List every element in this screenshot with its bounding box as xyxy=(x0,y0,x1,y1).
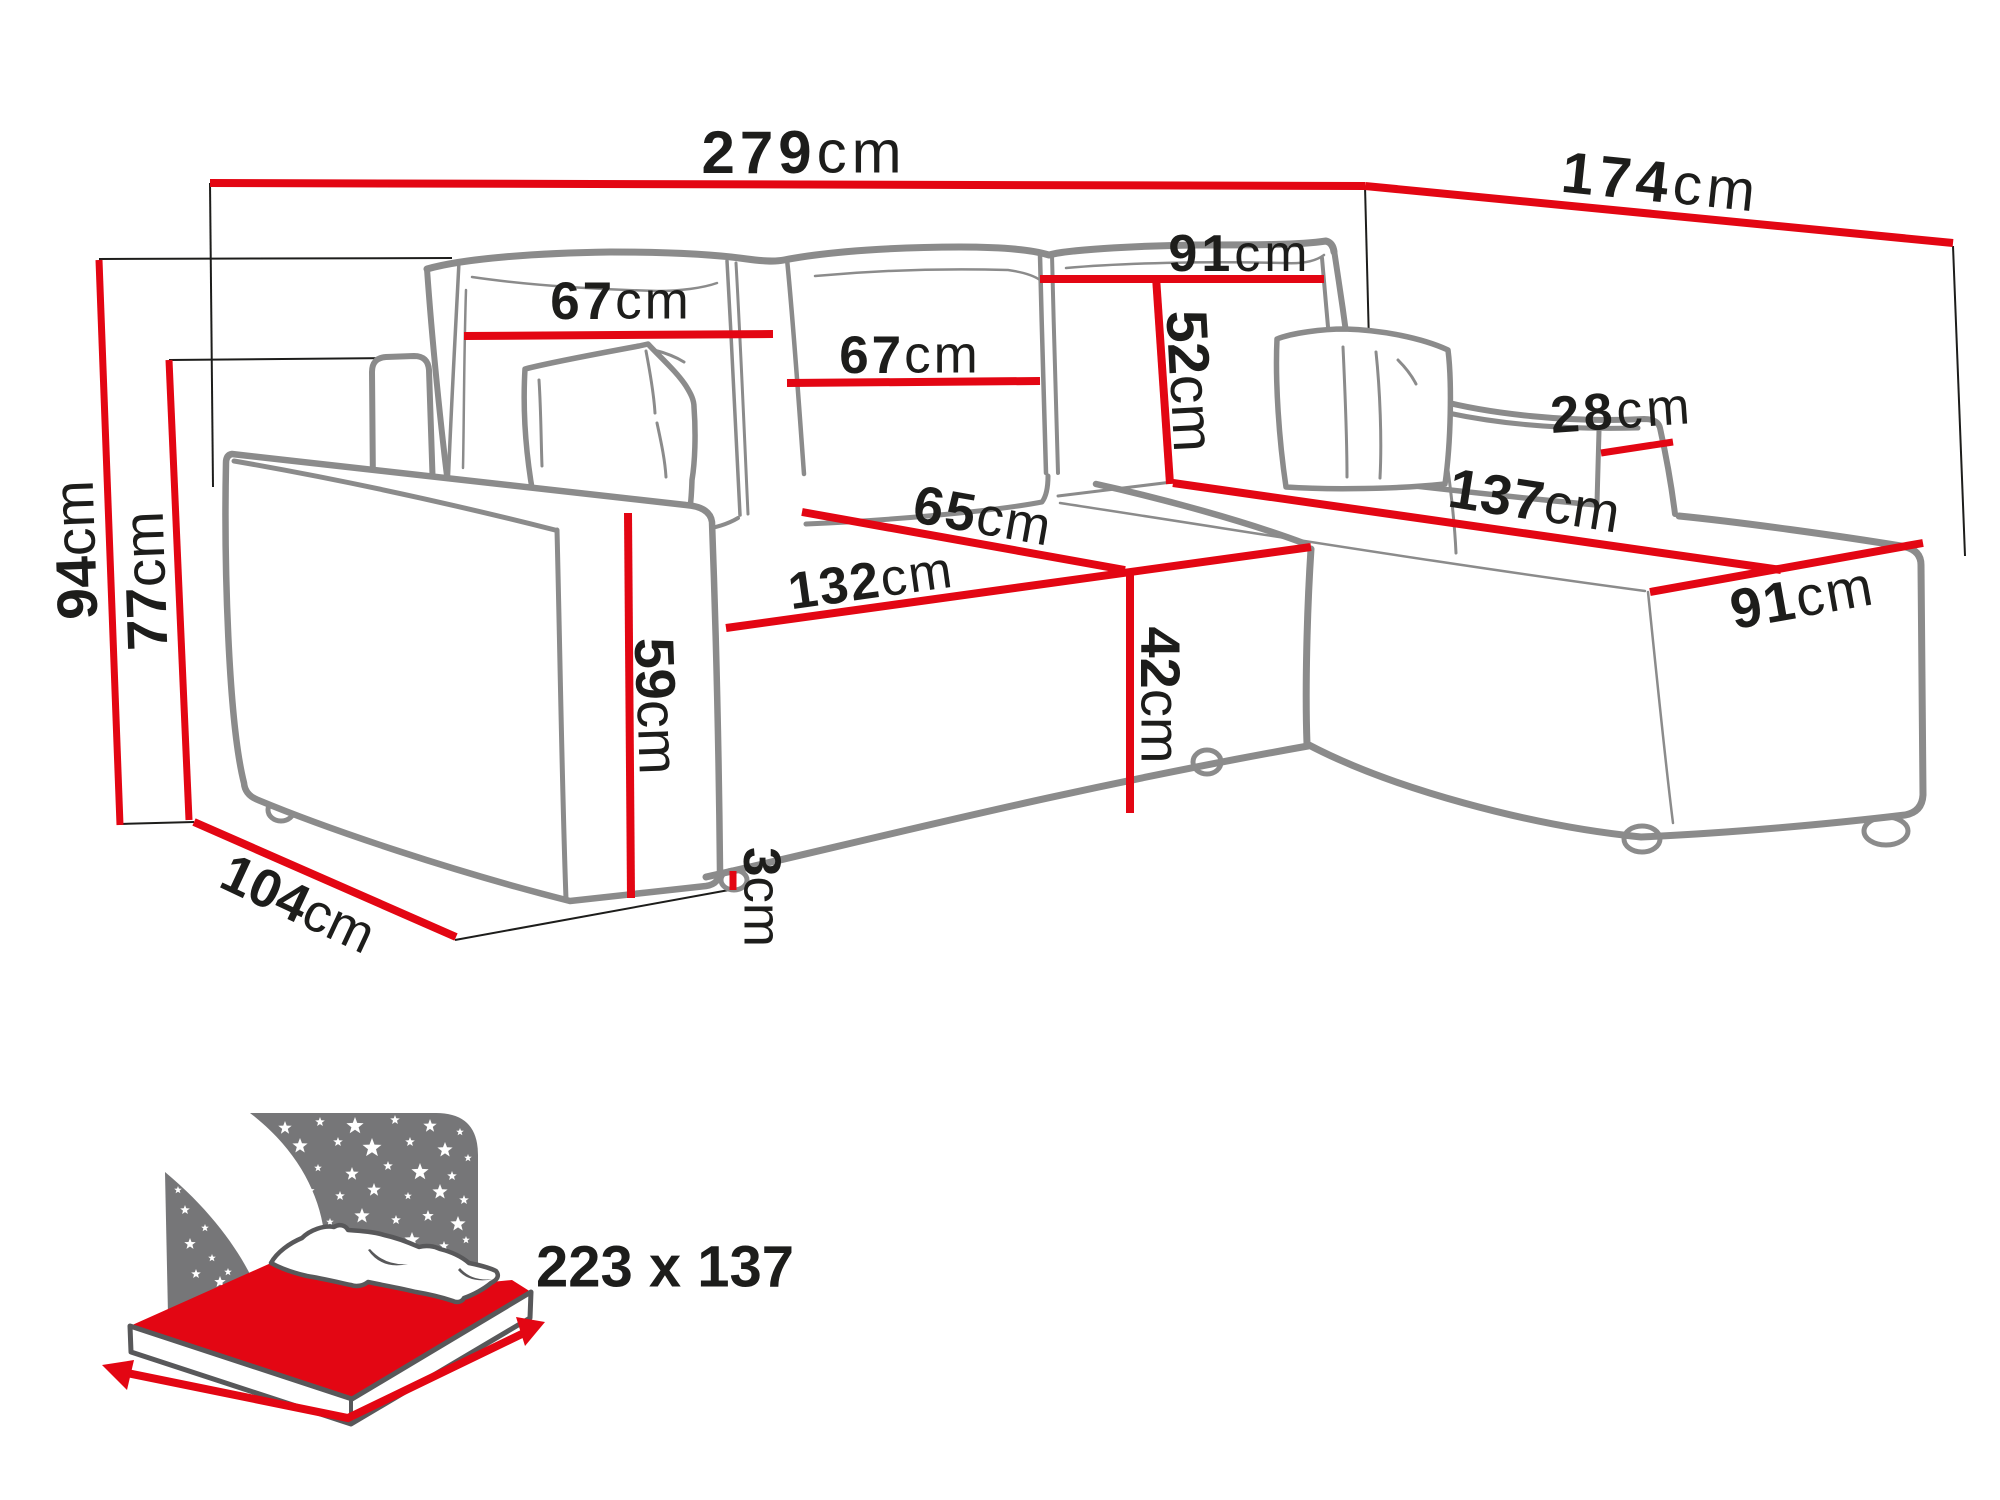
svg-text:3cm: 3cm xyxy=(733,847,792,947)
svg-text:67cm: 67cm xyxy=(839,326,981,385)
svg-text:77cm: 77cm xyxy=(112,510,181,652)
svg-text:42cm: 42cm xyxy=(1130,627,1193,764)
svg-text:279cm: 279cm xyxy=(701,119,906,186)
svg-text:67cm: 67cm xyxy=(550,272,692,331)
svg-text:52cm: 52cm xyxy=(1154,308,1226,453)
svg-text:91cm: 91cm xyxy=(1168,225,1311,283)
svg-text:28cm: 28cm xyxy=(1549,377,1696,445)
svg-text:59cm: 59cm xyxy=(623,636,691,775)
svg-text:223 x 137: 223 x 137 xyxy=(536,1235,794,1300)
svg-text:94cm: 94cm xyxy=(42,479,111,621)
